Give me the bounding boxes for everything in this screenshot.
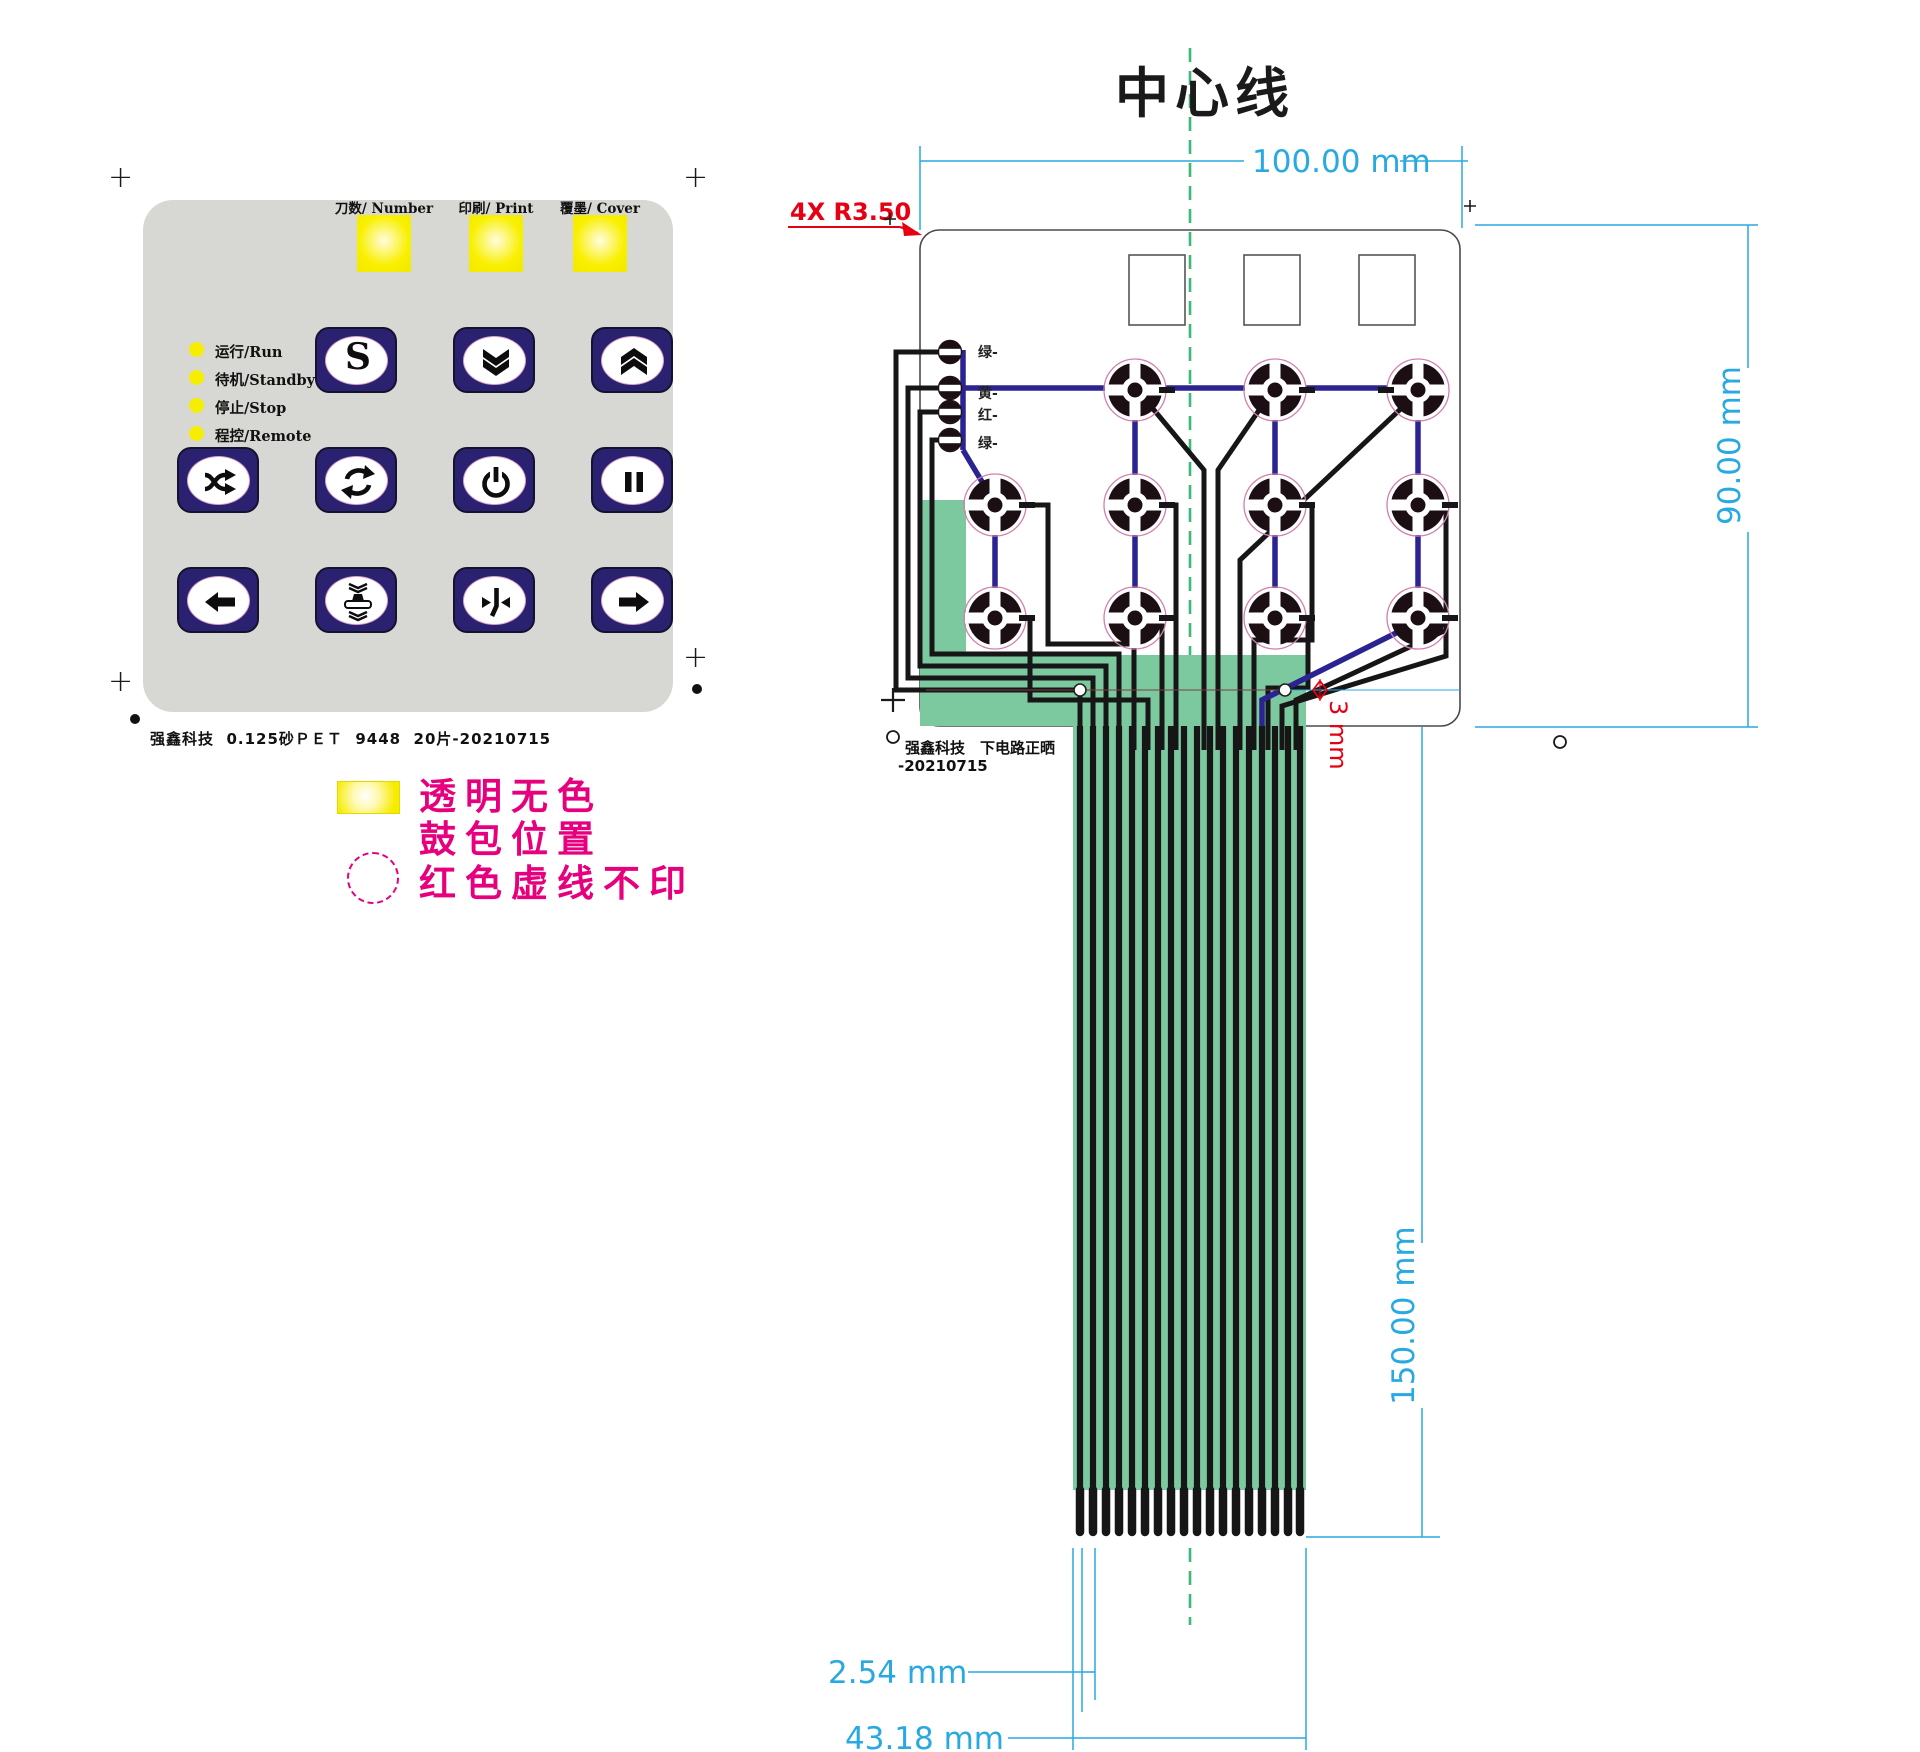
reg-dot-right bbox=[692, 684, 702, 694]
arrow-right-icon bbox=[614, 582, 654, 622]
legend-line-2: 鼓包位置 bbox=[419, 820, 603, 860]
led-label-red: 红- bbox=[978, 407, 998, 424]
s-letter-icon: S bbox=[317, 337, 399, 377]
legend-yellow-swatch bbox=[337, 781, 400, 814]
circuit-footer: 强鑫科技 下电路正晒 -20210715 bbox=[898, 739, 1055, 775]
led-contact-labels: 绿- 黄- 红- 绿- bbox=[978, 344, 998, 452]
led-remote-label: 程控/Remote bbox=[215, 425, 312, 446]
dim-pin-pitch: 2.54 mm bbox=[828, 1655, 967, 1691]
key-speed-s[interactable]: S bbox=[315, 327, 397, 393]
led-run bbox=[189, 342, 204, 357]
reg-mark-bottom-right: + bbox=[683, 648, 708, 668]
arrow-left-icon bbox=[200, 582, 240, 622]
key-merge[interactable] bbox=[453, 567, 535, 633]
svg-text:4X R3.50: 4X R3.50 bbox=[790, 198, 911, 226]
key-pause[interactable] bbox=[591, 447, 673, 513]
led-label-green1: 绿- bbox=[978, 344, 998, 361]
window-print-label: 印刷/ Print bbox=[436, 197, 556, 213]
led-label-yellow: 黄- bbox=[978, 385, 998, 402]
reg-dot-left bbox=[130, 714, 140, 724]
legend-dashed-circle bbox=[347, 852, 399, 904]
circuit-led-windows bbox=[1129, 255, 1415, 325]
keypad-panel: 刀数/ Number 印刷/ Print 覆墨/ Cover 运行/Run 待机… bbox=[143, 200, 673, 712]
merge-arrows-icon bbox=[476, 582, 516, 622]
double-chevron-down-icon bbox=[476, 342, 516, 382]
window-print bbox=[469, 215, 523, 272]
reg-mark-bottom-left: + bbox=[108, 672, 133, 692]
key-power[interactable] bbox=[453, 447, 535, 513]
legend-line-3: 红色虚线不印 bbox=[419, 864, 695, 904]
alignment-hole-right bbox=[1279, 684, 1291, 696]
keypad-footer-text: 强鑫科技 0.125砂ＰＥＴ 9448 20片-20210715 bbox=[150, 728, 551, 749]
power-icon bbox=[476, 462, 516, 502]
led-standby-label: 待机/Standby bbox=[215, 369, 315, 390]
pause-icon bbox=[614, 462, 654, 502]
connector-pins bbox=[1080, 1490, 1300, 1532]
legend-line-1: 透明无色 bbox=[419, 777, 603, 817]
dim-tail-length: 150.00 mm bbox=[1386, 1226, 1422, 1405]
alignment-hole-left bbox=[1074, 684, 1086, 696]
shuffle-icon bbox=[200, 462, 240, 502]
key-double-up[interactable] bbox=[591, 327, 673, 393]
key-cycle[interactable] bbox=[315, 447, 397, 513]
key-double-down[interactable] bbox=[453, 327, 535, 393]
key-shuffle[interactable] bbox=[177, 447, 259, 513]
press-icon bbox=[338, 582, 378, 622]
svg-text:强鑫科技 下电路正晒: 强鑫科技 下电路正晒 bbox=[905, 739, 1055, 757]
svg-text:3 mm: 3 mm bbox=[1324, 700, 1352, 770]
corner-radius-note: 4X R3.50 bbox=[788, 198, 922, 236]
key-arrow-right[interactable] bbox=[591, 567, 673, 633]
reg-mark-top-left: + bbox=[108, 168, 133, 188]
dim-width: 100.00 mm bbox=[1252, 144, 1431, 180]
rotate-icon bbox=[338, 462, 378, 502]
window-cover-label: 覆墨/ Cover bbox=[540, 197, 660, 213]
key-arrow-left[interactable] bbox=[177, 567, 259, 633]
key-press[interactable] bbox=[315, 567, 397, 633]
led-run-label: 运行/Run bbox=[215, 341, 282, 362]
led-contact-pads bbox=[938, 341, 962, 452]
reg-mark-top-right: + bbox=[683, 168, 708, 188]
dim-height: 90.00 mm bbox=[1712, 366, 1748, 525]
window-cover bbox=[573, 215, 627, 272]
membrane-switch-drawing: 绿- 黄- 红- 绿- 100.00 mm bbox=[0, 0, 1920, 1752]
led-remote bbox=[189, 426, 204, 441]
svg-text:-20210715: -20210715 bbox=[898, 757, 988, 775]
window-number bbox=[357, 215, 411, 272]
led-stop-label: 停止/Stop bbox=[215, 397, 286, 418]
window-number-label: 刀数/ Number bbox=[324, 197, 444, 213]
dim-tail-width: 43.18 mm bbox=[845, 1721, 1004, 1752]
drawing-title: 中心线 bbox=[1115, 62, 1295, 125]
led-stop bbox=[189, 398, 204, 413]
led-standby bbox=[189, 370, 204, 385]
double-chevron-up-icon bbox=[614, 342, 654, 382]
led-label-green2: 绿- bbox=[978, 435, 998, 452]
